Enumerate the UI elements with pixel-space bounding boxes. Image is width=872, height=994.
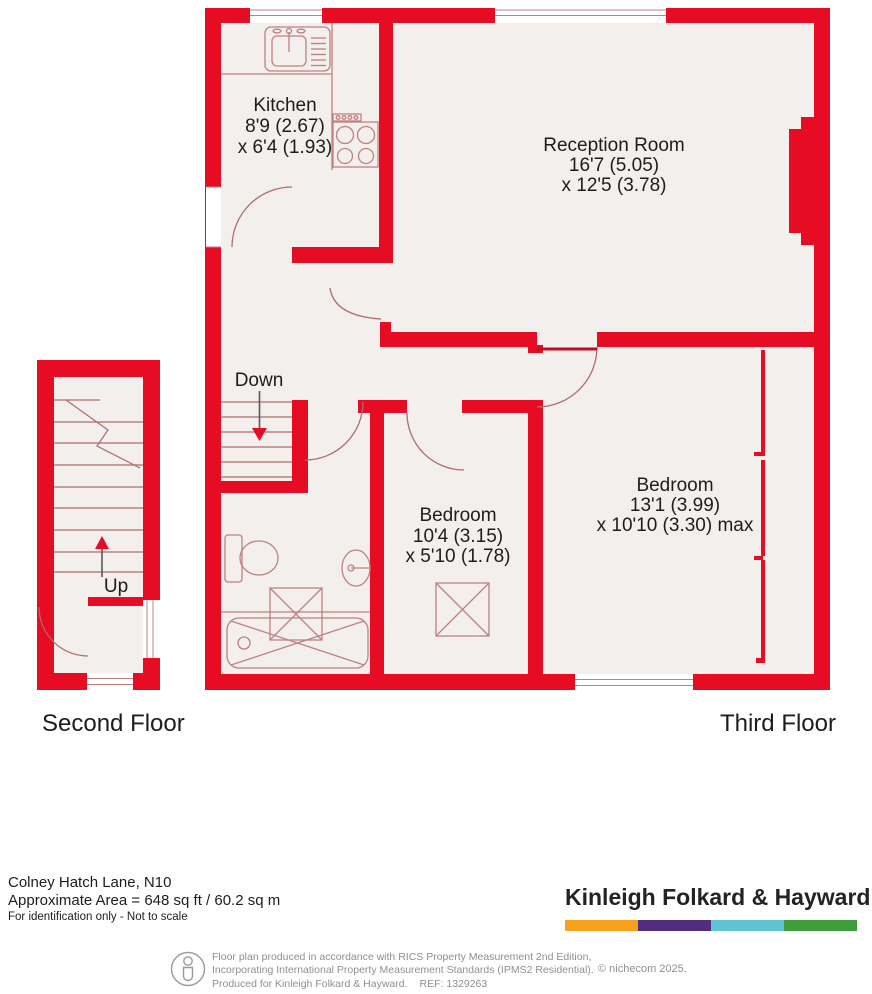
bedroom-small-dim2: x 5'10 (1.78) bbox=[405, 546, 510, 567]
agency-logo-text: Kinleigh Folkard & Hayward bbox=[565, 884, 865, 911]
floorplan-page: Kitchen 8'9 (2.67) x 6'4 (1.93) Receptio… bbox=[0, 0, 872, 992]
wall-recess bbox=[206, 187, 221, 247]
bedroom-small-label: Bedroom bbox=[419, 505, 496, 526]
third-floor-label: Third Floor bbox=[720, 710, 836, 737]
person-icon bbox=[170, 949, 206, 994]
second-floor-label: Second Floor bbox=[42, 710, 185, 737]
reception-window bbox=[495, 8, 666, 23]
third-floor-plan: Kitchen 8'9 (2.67) x 6'4 (1.93) Receptio… bbox=[205, 8, 836, 737]
bedroom-small-dim1: 10'4 (3.15) bbox=[413, 526, 503, 547]
brand-bar-green bbox=[784, 920, 857, 931]
brand-bar-teal bbox=[711, 920, 784, 931]
reception-dim1: 16'7 (5.05) bbox=[569, 155, 659, 176]
kitchen-window bbox=[250, 8, 322, 23]
second-floor-plan: Up Second Floor bbox=[37, 360, 185, 737]
floorplan-drawing: Kitchen 8'9 (2.67) x 6'4 (1.93) Receptio… bbox=[0, 0, 872, 770]
bedroom-large-dim2: x 10'10 (3.30) max bbox=[597, 515, 754, 536]
agency-brand: Kinleigh Folkard & Hayward bbox=[565, 884, 865, 931]
copyright-notice: © nichecom 2025. bbox=[598, 963, 687, 975]
reception-label: Reception Room bbox=[543, 135, 685, 156]
scale-note: For identification only - Not to scale bbox=[8, 910, 280, 925]
bedroom-window bbox=[575, 674, 693, 690]
kitchen-dim2: x 6'4 (1.93) bbox=[238, 137, 332, 158]
up-label: Up bbox=[104, 576, 128, 597]
brand-color-bar bbox=[565, 920, 857, 931]
property-details: Colney Hatch Lane, N10 Approximate Area … bbox=[8, 874, 280, 925]
bedroom-large-dim1: 13'1 (3.99) bbox=[630, 495, 720, 516]
bedroom-large-label: Bedroom bbox=[636, 475, 713, 496]
legal-line-3: Produced for Kinleigh Folkard & Hayward.… bbox=[212, 978, 682, 991]
down-label: Down bbox=[235, 370, 284, 391]
approximate-area: Approximate Area = 648 sq ft / 60.2 sq m bbox=[8, 892, 280, 910]
reference-number: REF: 1329263 bbox=[420, 978, 488, 990]
reception-dim2: x 12'5 (3.78) bbox=[561, 175, 666, 196]
brand-bar-purple bbox=[638, 920, 711, 931]
brand-bar-orange bbox=[565, 920, 638, 931]
property-address: Colney Hatch Lane, N10 bbox=[8, 874, 280, 892]
entrance-opening bbox=[87, 673, 133, 690]
kitchen-label: Kitchen bbox=[253, 95, 316, 116]
stairwell-window bbox=[143, 600, 160, 658]
kitchen-dim1: 8'9 (2.67) bbox=[245, 116, 325, 137]
